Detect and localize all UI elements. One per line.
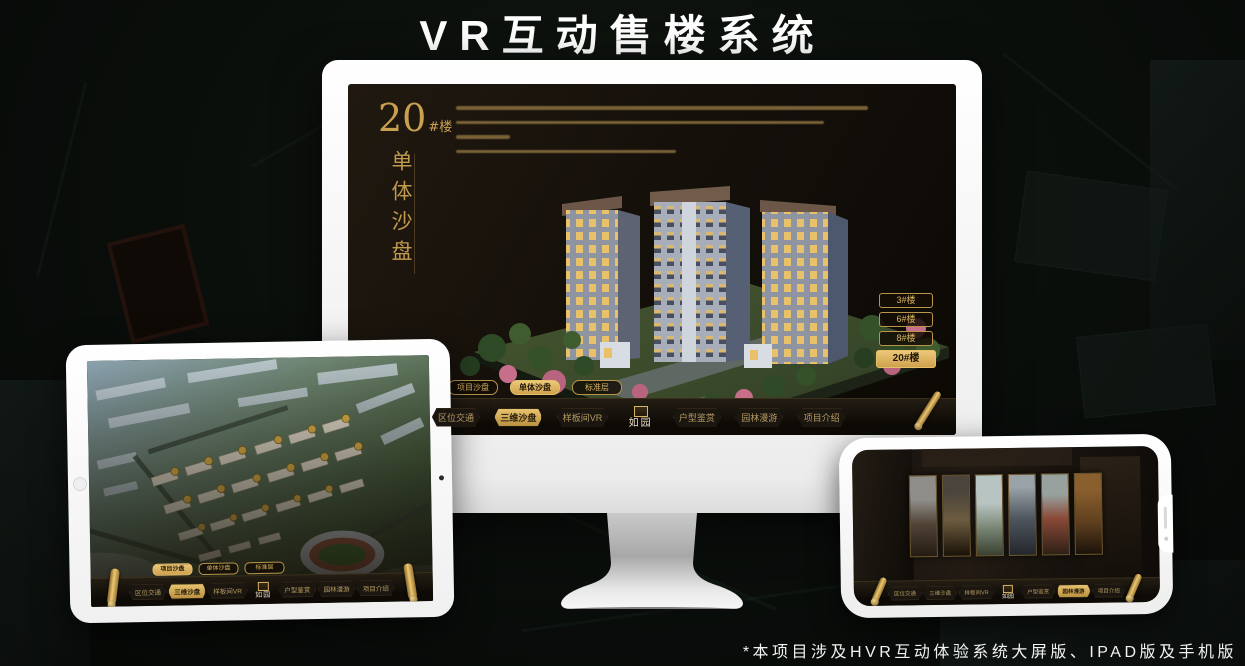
gallery-panel[interactable] <box>975 474 1004 556</box>
phone-nav-floorplans[interactable]: 户型鉴赏 <box>1027 587 1049 595</box>
tablet-nav-project-intro[interactable]: 项目介绍 <box>363 583 389 593</box>
nav-3d-sandbox[interactable]: 三维沙盘 <box>500 411 536 424</box>
phone-notch <box>1158 495 1174 553</box>
gallery-panel[interactable] <box>1008 474 1037 556</box>
tablet-nav-3d-sandbox[interactable]: 三维沙盘 <box>174 586 200 596</box>
phone-navbar: 区位交通 三维沙盘 样板间VR 如园 户型鉴赏 园林漫游 项目介绍 <box>854 577 1160 606</box>
background-sign <box>107 224 210 344</box>
tablet-subtab-standard-floor[interactable]: 标准层 <box>244 562 284 575</box>
building-title: 20#楼 <box>378 96 452 140</box>
nav-location-traffic[interactable]: 区位交通 <box>438 411 474 424</box>
brand-logo: 如园 <box>629 406 653 429</box>
subtab-single-sandbox[interactable]: 单体沙盘 <box>510 380 560 395</box>
tablet-home-button[interactable] <box>73 477 87 491</box>
tablet-nav-showroom-vr[interactable]: 样板间VR <box>213 585 242 595</box>
tablet-nav-location-traffic[interactable]: 区位交通 <box>135 587 161 597</box>
nav-showroom-vr[interactable]: 样板间VR <box>563 411 603 424</box>
phone-nav-3d-sandbox[interactable]: 三维沙盘 <box>929 589 951 597</box>
tablet-screen: 项目沙盘 单体沙盘 标准层 区位交通 三维沙盘 样板间VR 如园 户型鉴赏 园林… <box>87 355 433 607</box>
phone-brand-logo: 如园 <box>1002 584 1014 599</box>
phone-nav-project-intro[interactable]: 项目介绍 <box>1098 586 1120 594</box>
gallery-panel[interactable] <box>909 475 938 557</box>
phone-screen: 区位交通 三维沙盘 样板间VR 如园 户型鉴赏 园林漫游 项目介绍 <box>852 446 1160 606</box>
footer-note: *本项目涉及HVR互动体验系统大屏版、IPAD版及手机版 <box>743 638 1237 662</box>
tablet-brand-seal-icon <box>257 581 268 590</box>
phone-panorama-gallery <box>909 473 1103 558</box>
brand-seal-icon <box>634 406 648 417</box>
nav-project-intro[interactable]: 项目介绍 <box>804 411 840 424</box>
tablet-nav-floorplans[interactable]: 户型鉴赏 <box>284 584 310 594</box>
phone-brand-seal-icon <box>1003 584 1013 592</box>
floor-button-3[interactable]: 3#楼 <box>879 293 933 308</box>
floor-button-6[interactable]: 6#楼 <box>879 312 933 327</box>
phone-camera-icon <box>1164 537 1168 541</box>
tablet-navbar: 区位交通 三维沙盘 样板间VR 如园 户型鉴赏 园林漫游 项目介绍 <box>91 572 433 607</box>
gallery-panel[interactable] <box>1074 473 1103 555</box>
phone-speaker-icon <box>1164 507 1167 529</box>
tablet-brand-logo: 如园 <box>255 581 271 598</box>
tablet-camera-icon <box>439 475 444 480</box>
tablet-subtab-single-sandbox[interactable]: 单体沙盘 <box>198 562 238 575</box>
nav-floorplans[interactable]: 户型鉴赏 <box>679 411 715 424</box>
monitor-stand <box>537 513 767 613</box>
phone-device: 区位交通 三维沙盘 样板间VR 如园 户型鉴赏 园林漫游 项目介绍 <box>839 434 1173 619</box>
phone-nav-garden-roam[interactable]: 园林漫游 <box>1062 587 1084 595</box>
tablet-sandbox-subtabs: 项目沙盘 单体沙盘 标准层 <box>152 562 284 576</box>
subtab-project-sandbox[interactable]: 项目沙盘 <box>448 380 498 395</box>
subtab-standard-floor[interactable]: 标准层 <box>572 380 622 395</box>
tablet-subtab-project-sandbox[interactable]: 项目沙盘 <box>152 563 192 576</box>
tablet-device: 项目沙盘 单体沙盘 标准层 区位交通 三维沙盘 样板间VR 如园 户型鉴赏 园林… <box>66 339 455 624</box>
page-title: VR互动售楼系统 <box>0 2 1245 63</box>
building-subtitle-vertical: 单体沙盘 <box>386 150 416 270</box>
phone-nav-location-traffic[interactable]: 区位交通 <box>894 589 916 597</box>
gallery-panel[interactable] <box>942 475 971 557</box>
floor-selector: 3#楼 6#楼 8#楼 20#楼 <box>876 293 936 368</box>
floor-button-8[interactable]: 8#楼 <box>879 331 933 346</box>
phone-nav-showroom-vr[interactable]: 样板间VR <box>964 588 988 596</box>
sandbox-subtabs: 项目沙盘 单体沙盘 标准层 <box>448 380 622 395</box>
nav-garden-roam[interactable]: 园林漫游 <box>741 411 777 424</box>
gallery-panel[interactable] <box>1041 473 1070 555</box>
poster: VR互动售楼系统 20#楼 单体沙盘 <box>0 0 1245 666</box>
tablet-nav-garden-roam[interactable]: 园林漫游 <box>324 583 350 593</box>
floor-button-20[interactable]: 20#楼 <box>876 350 936 368</box>
